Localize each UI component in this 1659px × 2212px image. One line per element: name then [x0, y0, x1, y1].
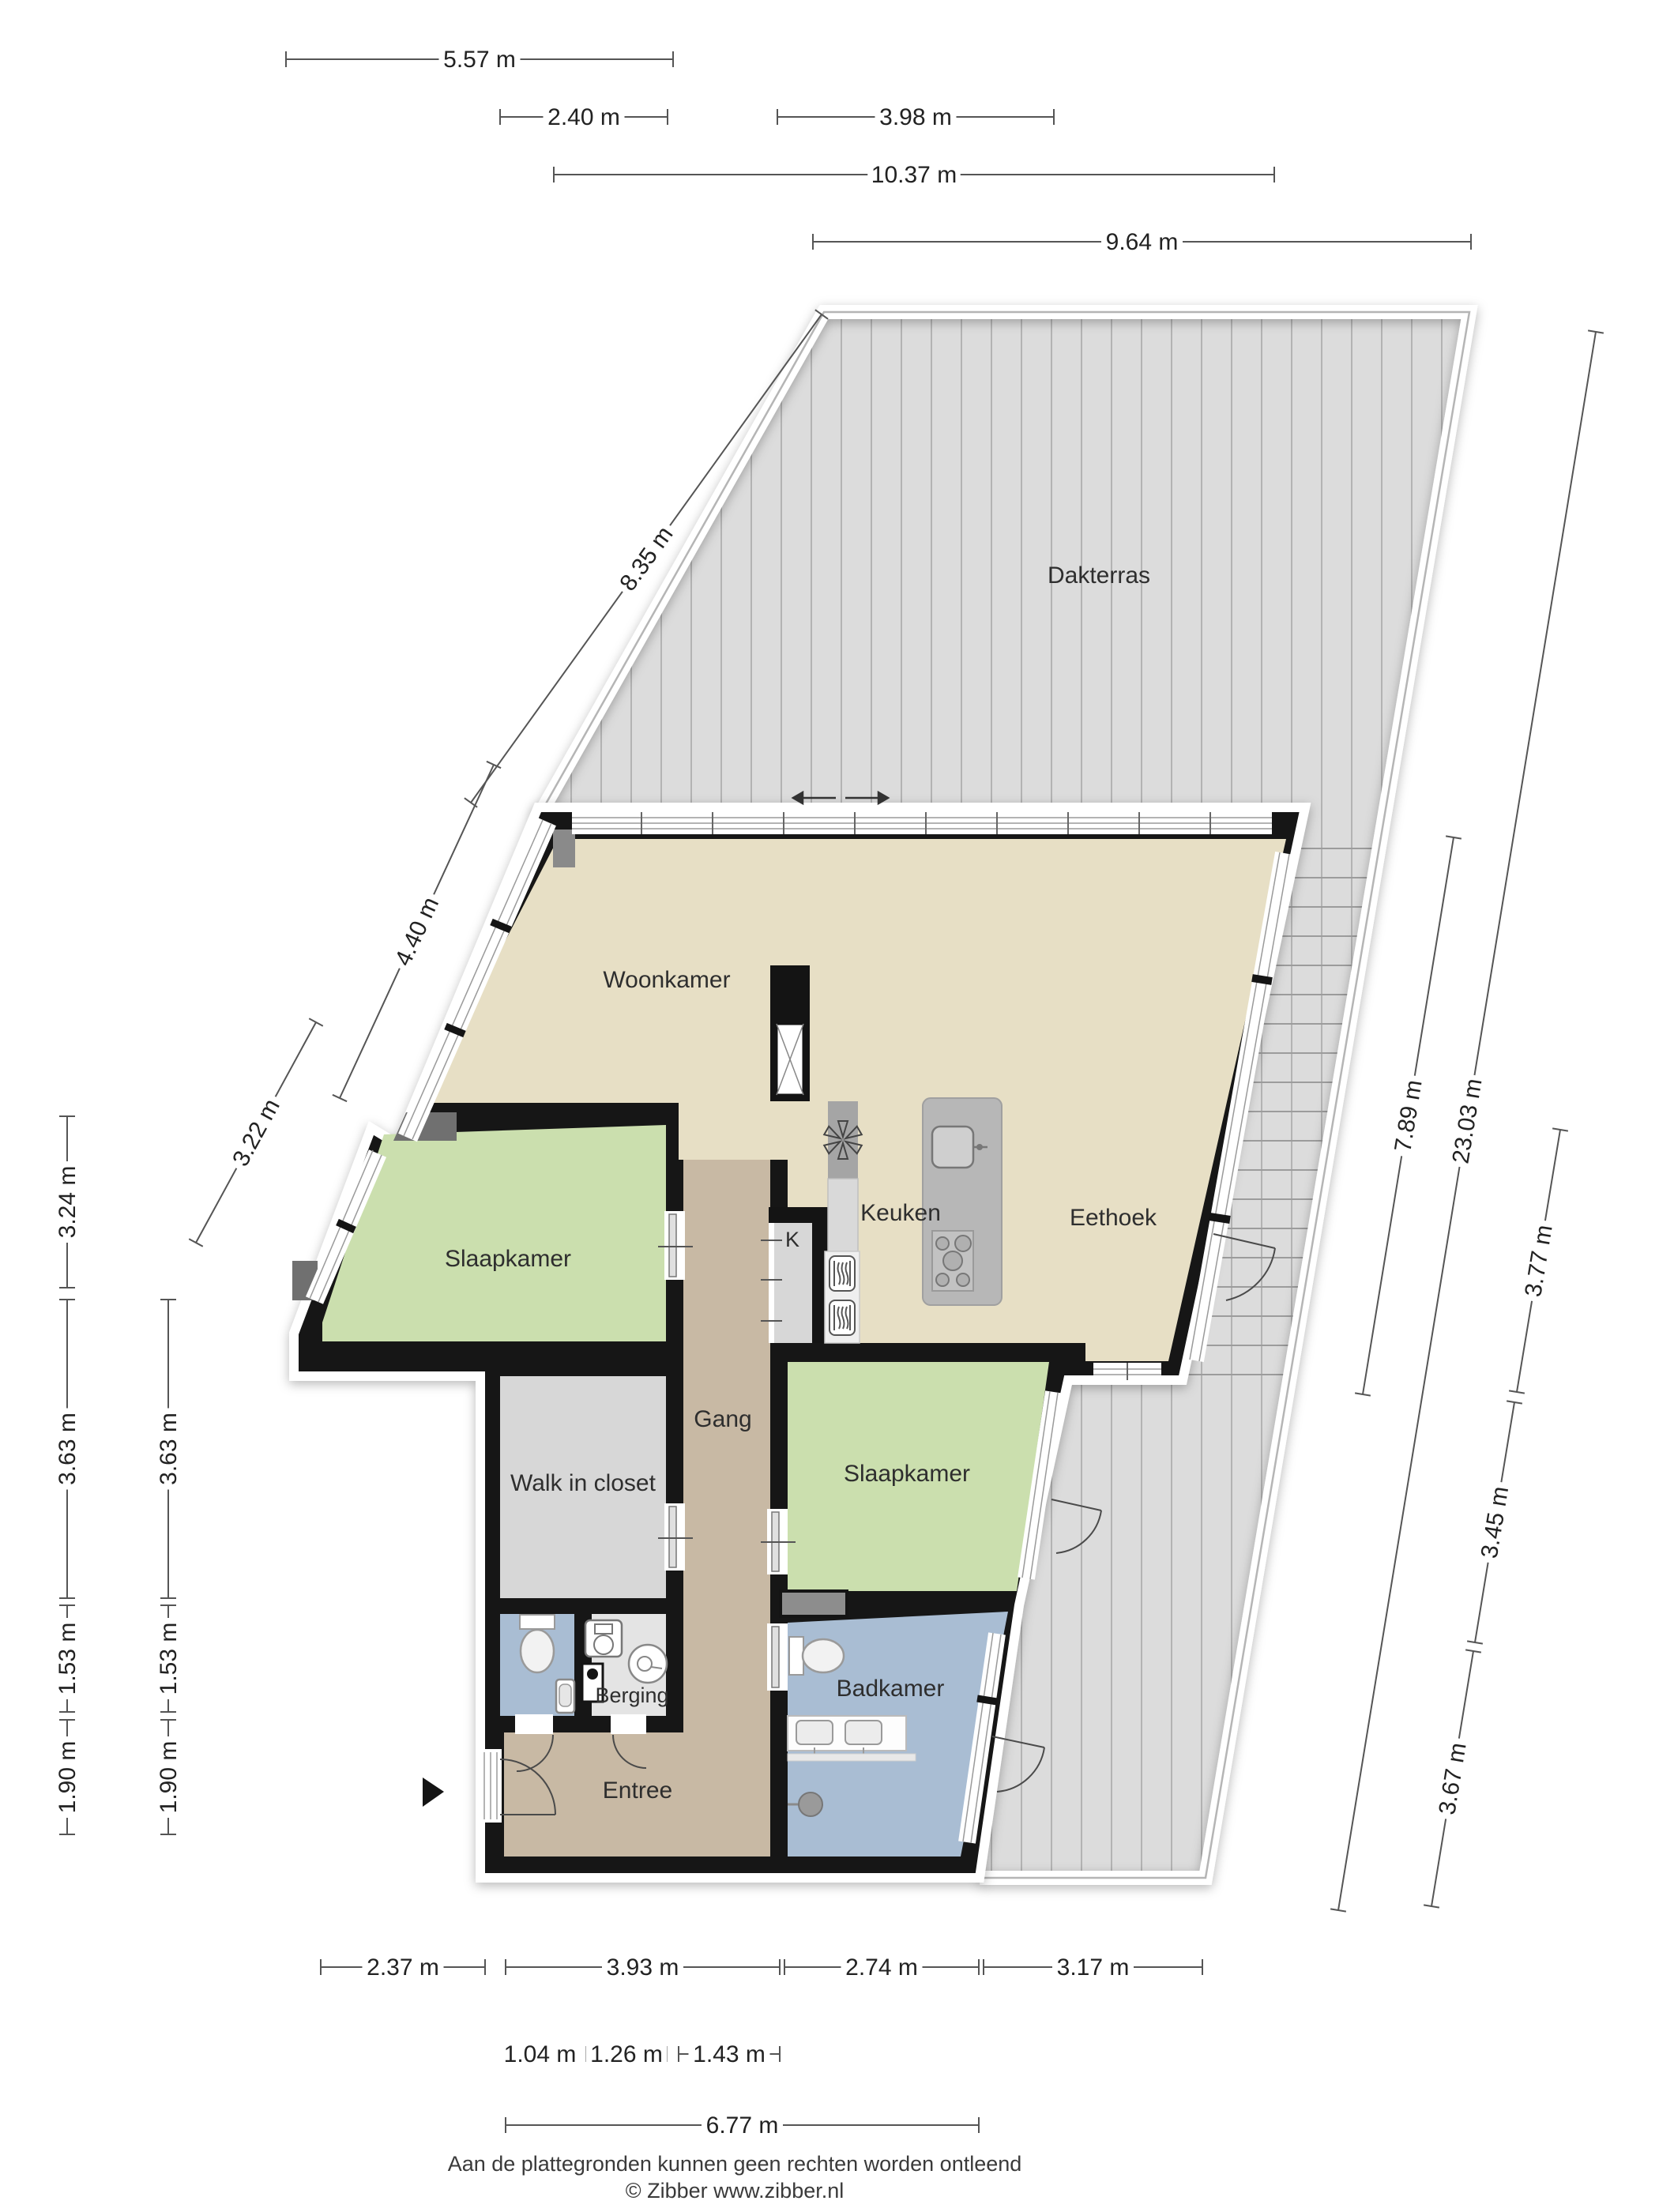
- window-band-dining-bottom: [1093, 1363, 1161, 1380]
- svg-text:3.24 m: 3.24 m: [55, 1166, 81, 1239]
- dimension: 3.17 m: [984, 1954, 1202, 1981]
- svg-text:7.89 m: 7.89 m: [1390, 1078, 1427, 1154]
- dimension: 1.90 m: [54, 1720, 81, 1834]
- toilet-icon: [789, 1637, 844, 1675]
- svg-text:3.17 m: 3.17 m: [1057, 1954, 1130, 1981]
- dimension: 9.64 m: [813, 228, 1471, 255]
- bathroom-cabinet: [781, 1591, 847, 1616]
- label-woonkamer: Woonkamer: [603, 967, 730, 993]
- dimension: 1.53 m: [54, 1605, 81, 1712]
- floor-plan: Dakterras Woonkamer Keuken K Eethoek Sla…: [0, 0, 1659, 2212]
- label-gang: Gang: [694, 1406, 751, 1432]
- svg-text:1.04 m: 1.04 m: [504, 2041, 577, 2067]
- label-badkamer: Badkamer: [837, 1676, 945, 1702]
- double-washbasin-icon: [788, 1716, 916, 1761]
- svg-text:4.40 m: 4.40 m: [390, 893, 444, 970]
- footer: Aan de plattegronden kunnen geen rechten…: [448, 2152, 1022, 2203]
- label-slaapkamer1: Slaapkamer: [445, 1246, 571, 1272]
- svg-text:23.03 m: 23.03 m: [1447, 1077, 1487, 1165]
- svg-text:3.63 m: 3.63 m: [156, 1413, 182, 1485]
- label-keuken: Keuken: [860, 1200, 941, 1226]
- mechanical-unit-icon: [629, 1645, 667, 1683]
- svg-text:3.22 m: 3.22 m: [228, 1095, 285, 1171]
- svg-text:5.57 m: 5.57 m: [443, 47, 516, 73]
- svg-text:1.53 m: 1.53 m: [156, 1623, 182, 1695]
- dimension: 1.04 m: [499, 2041, 581, 2067]
- svg-text:1.90 m: 1.90 m: [156, 1741, 182, 1814]
- label-slaapkamer2: Slaapkamer: [844, 1461, 970, 1487]
- washing-machine-icon: [585, 1620, 622, 1657]
- dimension: 3.24 m: [54, 1116, 81, 1288]
- dimension: 3.67 m: [1424, 1650, 1481, 1907]
- svg-text:1.90 m: 1.90 m: [55, 1741, 81, 1814]
- dimension: 1.43 m: [679, 2041, 780, 2067]
- oven-icon: [829, 1256, 855, 1291]
- svg-text:1.53 m: 1.53 m: [55, 1623, 81, 1695]
- label-berging: Berging: [595, 1683, 668, 1707]
- footer-disclaimer: Aan de plattegronden kunnen geen rechten…: [448, 2152, 1022, 2176]
- svg-text:2.74 m: 2.74 m: [845, 1954, 918, 1981]
- label-walkincloset: Walk in closet: [510, 1470, 656, 1496]
- dimension: 3.22 m: [189, 1018, 323, 1247]
- dimension: 3.77 m: [1509, 1128, 1568, 1393]
- dimension: 3.63 m: [155, 1300, 182, 1598]
- dimension: 3.63 m: [54, 1300, 81, 1598]
- svg-text:3.45 m: 3.45 m: [1477, 1484, 1514, 1560]
- counter-light: [828, 1179, 858, 1251]
- svg-text:9.64 m: 9.64 m: [1106, 229, 1179, 255]
- dimension: 1.53 m: [155, 1605, 182, 1712]
- toilet-icon: [520, 1615, 555, 1672]
- dimension: 3.45 m: [1467, 1401, 1522, 1643]
- structure-wedge: [553, 829, 575, 867]
- oven-icon: [829, 1300, 855, 1335]
- shaft: [770, 965, 810, 1101]
- hob-icon: [932, 1231, 973, 1291]
- small-sink-icon: [556, 1680, 574, 1713]
- dimension: 2.40 m: [500, 103, 668, 130]
- svg-text:1.26 m: 1.26 m: [590, 2041, 663, 2067]
- label-dakterras: Dakterras: [1048, 562, 1150, 589]
- svg-text:3.67 m: 3.67 m: [1434, 1741, 1471, 1817]
- dimension: 1.90 m: [155, 1720, 182, 1834]
- dimension: 1.26 m: [586, 2041, 668, 2067]
- dimension: 5.57 m: [286, 46, 673, 73]
- svg-text:6.77 m: 6.77 m: [706, 2112, 779, 2139]
- dimension: 3.98 m: [777, 103, 1054, 130]
- svg-text:3.98 m: 3.98 m: [879, 104, 952, 130]
- svg-text:10.37 m: 10.37 m: [871, 162, 957, 188]
- svg-text:2.40 m: 2.40 m: [547, 104, 620, 130]
- svg-text:1.43 m: 1.43 m: [693, 2041, 766, 2067]
- label-k: K: [785, 1228, 799, 1251]
- dimension: 2.37 m: [321, 1954, 485, 1981]
- svg-text:3.77 m: 3.77 m: [1520, 1223, 1558, 1299]
- dimension: 6.77 m: [506, 2112, 979, 2139]
- svg-text:3.63 m: 3.63 m: [55, 1413, 81, 1485]
- svg-text:2.37 m: 2.37 m: [367, 1954, 439, 1981]
- counter-dark: [828, 1101, 858, 1179]
- dimension: 3.93 m: [506, 1954, 780, 1981]
- door-badkamer: [767, 1623, 788, 1691]
- label-entree: Entree: [603, 1777, 672, 1804]
- dimension: 10.37 m: [554, 161, 1274, 188]
- label-eethoek: Eethoek: [1070, 1205, 1157, 1231]
- footer-copyright: © Zibber www.zibber.nl: [626, 2179, 845, 2203]
- dimension: 2.74 m: [784, 1954, 979, 1981]
- entrance-arrow-icon: [423, 1777, 444, 1807]
- svg-text:3.93 m: 3.93 m: [607, 1954, 679, 1981]
